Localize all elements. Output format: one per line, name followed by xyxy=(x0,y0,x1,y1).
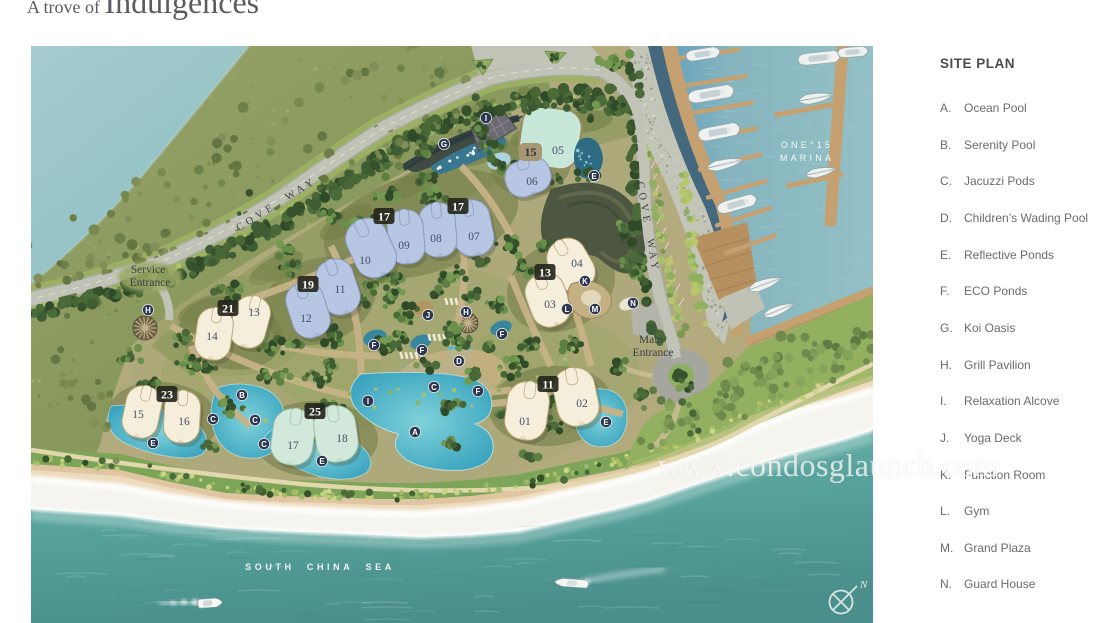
svg-text:07: 07 xyxy=(468,231,480,243)
svg-text:13: 13 xyxy=(539,266,551,280)
svg-text:11: 11 xyxy=(334,284,345,296)
svg-text:05: 05 xyxy=(552,143,564,157)
svg-text:ONE°15: ONE°15 xyxy=(781,140,833,150)
svg-text:06: 06 xyxy=(526,176,538,188)
svg-text:C: C xyxy=(261,440,267,449)
svg-text:09: 09 xyxy=(398,240,410,252)
svg-text:11: 11 xyxy=(542,378,553,392)
svg-text:04: 04 xyxy=(571,258,583,270)
svg-text:12: 12 xyxy=(300,313,312,325)
svg-text:E: E xyxy=(603,418,609,427)
svg-text:G: G xyxy=(441,140,447,149)
svg-text:08: 08 xyxy=(430,233,442,245)
svg-text:10: 10 xyxy=(359,255,371,267)
svg-text:03: 03 xyxy=(544,299,556,311)
svg-text:Main: Main xyxy=(639,334,664,346)
svg-text:B: B xyxy=(239,391,245,400)
svg-text:17: 17 xyxy=(287,440,299,452)
svg-text:02: 02 xyxy=(576,398,588,410)
svg-text:K: K xyxy=(582,277,588,286)
svg-text:MARINA: MARINA xyxy=(780,153,834,163)
svg-text:Entrance: Entrance xyxy=(633,347,674,359)
svg-text:C: C xyxy=(252,416,258,425)
svg-text:I: I xyxy=(367,397,369,406)
svg-text:C: C xyxy=(431,383,437,392)
svg-text:J: J xyxy=(426,311,430,320)
svg-text:Service: Service xyxy=(131,264,165,276)
svg-text:16: 16 xyxy=(178,416,190,428)
svg-text:M: M xyxy=(592,305,599,314)
svg-text:N: N xyxy=(859,579,868,591)
svg-text:13: 13 xyxy=(248,307,260,319)
svg-text:Entrance: Entrance xyxy=(130,277,171,289)
svg-text:E: E xyxy=(319,457,325,466)
svg-text:F: F xyxy=(500,330,505,339)
svg-text:C: C xyxy=(210,415,216,424)
svg-text:17: 17 xyxy=(452,200,464,214)
svg-text:A: A xyxy=(412,428,418,437)
svg-text:H: H xyxy=(145,306,151,315)
svg-text:19: 19 xyxy=(302,278,314,292)
svg-text:14: 14 xyxy=(206,331,218,343)
svg-text:15: 15 xyxy=(525,145,537,159)
svg-text:F: F xyxy=(372,341,377,350)
svg-text:H: H xyxy=(463,308,469,317)
svg-text:I: I xyxy=(485,114,487,123)
svg-text:F: F xyxy=(476,387,481,396)
svg-text:15: 15 xyxy=(132,409,144,421)
svg-text:17: 17 xyxy=(378,210,390,224)
svg-text:L: L xyxy=(565,305,570,314)
svg-text:E: E xyxy=(150,439,156,448)
svg-text:23: 23 xyxy=(161,388,173,402)
svg-text:18: 18 xyxy=(336,433,348,445)
svg-text:F: F xyxy=(420,346,425,355)
svg-text:N: N xyxy=(630,299,636,308)
svg-text:SOUTH CHINA SEA: SOUTH CHINA SEA xyxy=(245,562,395,572)
svg-text:21: 21 xyxy=(222,302,234,316)
svg-text:E: E xyxy=(591,172,597,181)
svg-text:01: 01 xyxy=(519,416,531,428)
svg-text:D: D xyxy=(456,357,462,366)
svg-text:25: 25 xyxy=(309,405,321,419)
